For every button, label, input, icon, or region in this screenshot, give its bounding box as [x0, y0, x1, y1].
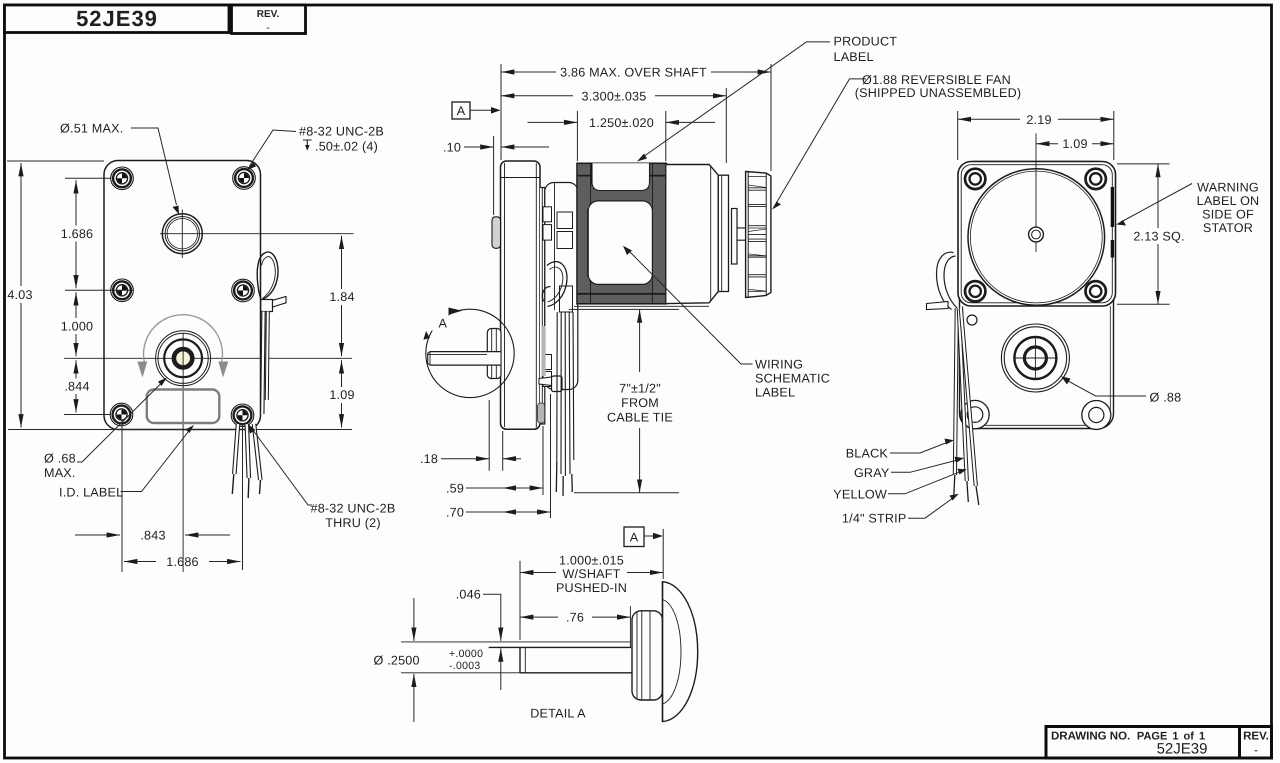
svg-text:.843: .843: [140, 529, 165, 543]
svg-text:LABEL: LABEL: [755, 385, 795, 399]
svg-text:WARNING: WARNING: [1197, 181, 1259, 195]
svg-text:BLACK: BLACK: [846, 447, 889, 461]
svg-text:WIRING: WIRING: [755, 357, 803, 371]
svg-text:1.84: 1.84: [329, 290, 354, 304]
svg-text:1.000±.015: 1.000±.015: [559, 553, 624, 567]
svg-text:#8-32 UNC-2B: #8-32 UNC-2B: [299, 125, 384, 139]
svg-text:FROM: FROM: [621, 396, 659, 410]
svg-text:LABEL: LABEL: [834, 50, 874, 64]
svg-text:1.686: 1.686: [166, 555, 199, 569]
svg-text:(SHIPPED UNASSEMBLED): (SHIPPED UNASSEMBLED): [855, 86, 1022, 100]
svg-text:GRAY: GRAY: [854, 466, 890, 480]
svg-text:YELLOW: YELLOW: [833, 487, 887, 501]
svg-text:A: A: [439, 317, 448, 331]
svg-text:3.86 MAX. OVER SHAFT: 3.86 MAX. OVER SHAFT: [560, 66, 707, 80]
svg-text:1.09: 1.09: [329, 388, 354, 402]
svg-text:1.686: 1.686: [61, 227, 94, 241]
svg-text:THRU (2): THRU (2): [325, 516, 380, 530]
svg-text:1.250±.020: 1.250±.020: [589, 116, 654, 130]
svg-text:Ø .2500: Ø .2500: [374, 654, 420, 668]
svg-text:CABLE TIE: CABLE TIE: [607, 411, 673, 425]
svg-text:1/4" STRIP: 1/4" STRIP: [842, 512, 907, 526]
svg-text:SCHEMATIC: SCHEMATIC: [755, 371, 830, 385]
svg-text:52JE39: 52JE39: [1157, 741, 1208, 758]
svg-text:-: -: [266, 22, 270, 34]
svg-text:STATOR: STATOR: [1203, 221, 1253, 235]
svg-text:1.000: 1.000: [61, 320, 94, 334]
svg-text:I.D. LABEL: I.D. LABEL: [59, 486, 123, 500]
svg-text:2.13 SQ.: 2.13 SQ.: [1133, 230, 1184, 244]
svg-text:REV.: REV.: [1243, 731, 1269, 743]
svg-text:#8-32 UNC-2B: #8-32 UNC-2B: [311, 502, 396, 516]
svg-text:-.0003: -.0003: [449, 660, 481, 672]
svg-text:+.0000: +.0000: [449, 648, 483, 660]
svg-text:3.300±.035: 3.300±.035: [582, 89, 647, 103]
svg-text:Ø .68: Ø .68: [44, 452, 76, 466]
svg-text:.70: .70: [446, 506, 464, 520]
svg-text:-: -: [1254, 743, 1258, 757]
svg-text:DRAWING NO.: DRAWING NO.: [1051, 731, 1130, 743]
svg-text:7"±1/2": 7"±1/2": [619, 382, 661, 396]
svg-text:LABEL ON: LABEL ON: [1197, 194, 1260, 208]
svg-text:PRODUCT: PRODUCT: [834, 35, 898, 49]
svg-text:A: A: [630, 531, 639, 545]
svg-text:PUSHED-IN: PUSHED-IN: [556, 581, 627, 595]
svg-text:MAX.: MAX.: [44, 466, 76, 480]
svg-text:.18: .18: [420, 452, 438, 466]
svg-text:REV.: REV.: [257, 9, 280, 20]
svg-text:.046: .046: [456, 588, 481, 602]
svg-text:SIDE OF: SIDE OF: [1202, 208, 1254, 222]
svg-text:Ø1.88 REVERSIBLE FAN: Ø1.88 REVERSIBLE FAN: [862, 73, 1011, 87]
svg-text:.50±.02 (4): .50±.02 (4): [315, 140, 378, 154]
svg-text:A: A: [457, 104, 466, 118]
svg-text:2.19: 2.19: [1026, 113, 1051, 127]
svg-text:52JE39: 52JE39: [76, 6, 158, 31]
svg-text:Ø .88: Ø .88: [1150, 391, 1182, 405]
svg-text:W/SHAFT: W/SHAFT: [562, 567, 620, 581]
svg-text:4.03: 4.03: [7, 288, 32, 302]
svg-text:DETAIL A: DETAIL A: [530, 707, 586, 721]
svg-text:.10: .10: [443, 141, 461, 155]
svg-text:1.09: 1.09: [1062, 137, 1087, 151]
svg-text:Ø.51 MAX.: Ø.51 MAX.: [60, 122, 123, 136]
svg-text:.76: .76: [566, 611, 584, 625]
svg-text:.59: .59: [446, 482, 464, 496]
svg-text:.844: .844: [64, 380, 89, 394]
